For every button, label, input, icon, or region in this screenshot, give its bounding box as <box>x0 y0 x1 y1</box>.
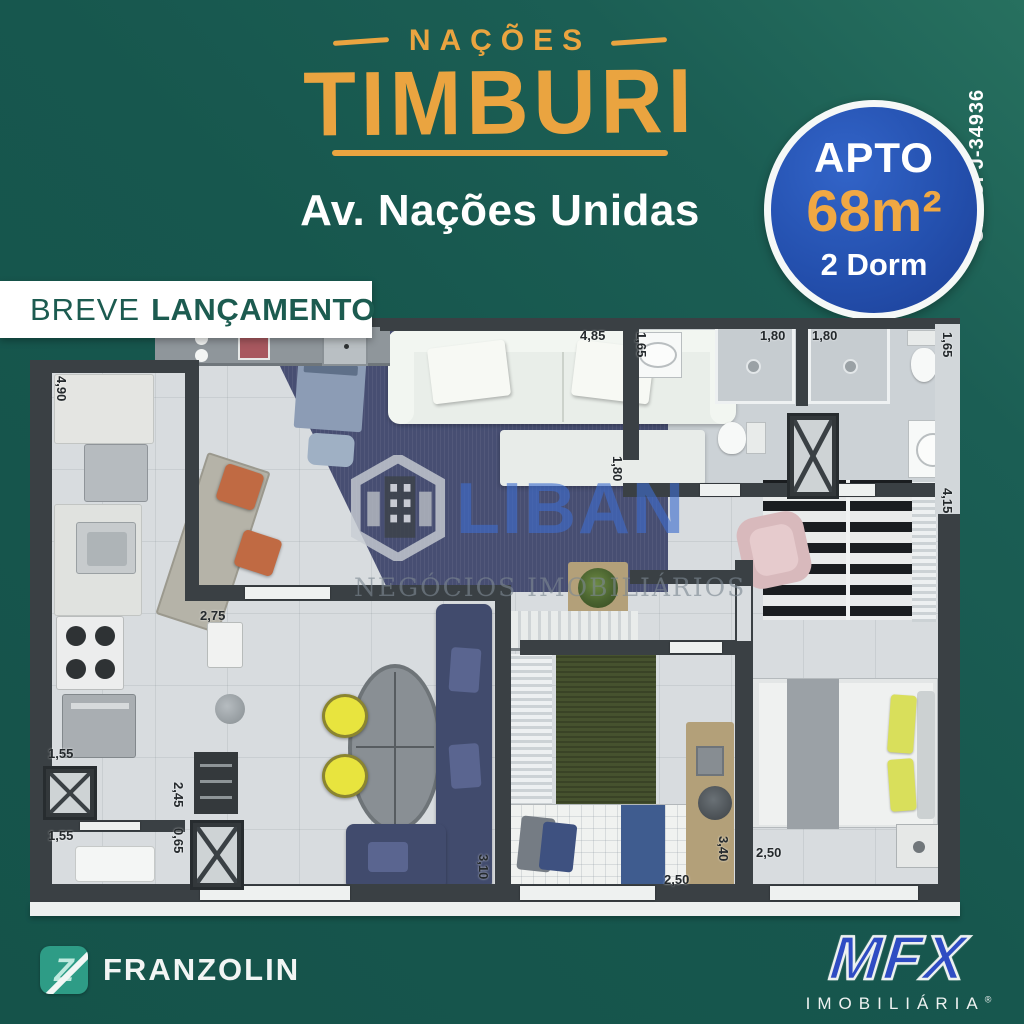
cooktop <box>207 622 243 668</box>
burner-1 <box>66 626 86 646</box>
dim-label-bed2-w: 2,50 <box>664 872 689 887</box>
mfx-subtitle: IMOBILIÁRIA® <box>791 994 1006 1014</box>
sofa-cushion-2 <box>449 743 482 789</box>
door-bath1 <box>700 484 740 496</box>
sofa-cushion-3 <box>368 842 408 872</box>
stove <box>56 616 124 690</box>
watermark-tagline: NEGÓCIOS IMOBILIÁRIOS <box>354 573 699 602</box>
nightstand <box>896 824 940 868</box>
launch-banner: BREVE LANÇAMENTO <box>0 281 372 338</box>
wall-bath-divider <box>796 326 808 406</box>
sofa-pillow-left <box>427 339 511 404</box>
banner-bold-text: LANÇAMENTO <box>151 292 376 328</box>
bed-pillow-yellow-1 <box>887 694 917 754</box>
watermark-name: LIBAN <box>456 473 686 545</box>
franzolin-logo-icon: Z <box>40 946 88 994</box>
bed-pillow-back <box>917 691 935 819</box>
dining-chair-2 <box>322 754 368 798</box>
dim-label-shaft-w: 1,55 <box>48 746 73 761</box>
dim-label-bath1-w: 1,80 <box>760 328 785 343</box>
badge-area-value: 68m² <box>806 179 941 246</box>
bath2-toilet-bowl <box>911 348 937 382</box>
franzolin-logo: Z FRANZOLIN <box>40 946 300 994</box>
living-sofa <box>388 330 736 424</box>
window-bed2 <box>520 886 655 900</box>
franzolin-name: FRANZOLIN <box>103 952 300 988</box>
burner-4 <box>95 659 115 679</box>
round-basin <box>215 694 245 724</box>
sectional-sofa-bottom <box>346 824 446 890</box>
wall-kitchen-bed2-divider <box>495 585 511 902</box>
dim-label-service2: 0,65 <box>171 828 186 853</box>
liban-watermark: LIBAN NEGÓCIOS IMOBILIÁRIOS <box>350 455 686 561</box>
bath1-toilet-tank <box>746 422 766 454</box>
balcony-strip <box>30 902 960 916</box>
shaft-x-icon-3 <box>190 820 244 890</box>
dim-label-bed2-len: 3,40 <box>716 836 731 861</box>
liban-building-icon <box>350 455 446 561</box>
bed-pillow-yellow-2 <box>887 758 917 812</box>
wall-left-outer <box>30 360 52 902</box>
fridge <box>84 444 148 502</box>
bath1-toilet-bowl <box>718 422 746 454</box>
shaft-x-icon <box>787 413 839 499</box>
blue-blanket <box>621 805 665 891</box>
door-bath2 <box>835 484 875 496</box>
franzolin-z-glyph: Z <box>40 946 88 994</box>
wall-top-left-cap <box>30 360 188 373</box>
dim-label-bath1-sink: 1,65 <box>634 332 649 357</box>
bed2-rug <box>556 648 656 808</box>
logo-dash-right-icon <box>611 37 667 46</box>
burner-3 <box>66 659 86 679</box>
master-bed <box>752 678 938 828</box>
dim-label-sofa-len: 3,10 <box>476 854 491 879</box>
mfx-registered-icon: ® <box>985 994 992 1004</box>
shower-head-2 <box>843 359 858 374</box>
nightstand-knob <box>913 841 925 853</box>
cooktop-dot <box>344 344 349 349</box>
dim-label-kitchen-w: 2,75 <box>200 608 225 623</box>
bed-throw <box>787 679 839 829</box>
dim-label-kitchen-len: 4,90 <box>54 376 69 401</box>
sofa-seam <box>562 352 564 422</box>
counter-line-3 <box>200 796 232 799</box>
shower-head-1 <box>746 359 761 374</box>
counter-line-1 <box>200 764 232 767</box>
armchair-cushion <box>747 522 800 578</box>
dining-chair-1 <box>322 694 368 738</box>
door-laundry <box>80 822 140 830</box>
master-rug-seam <box>846 480 850 620</box>
dim-label-bath2-w: 1,80 <box>812 328 837 343</box>
floor-plan: 4,90 4,85 1,65 1,80 1,80 1,65 1,80 4,15 … <box>30 318 960 902</box>
dim-label-laundry-w: 1,55 <box>48 828 73 843</box>
workstation-desk <box>294 358 367 433</box>
bed2-curtain <box>510 654 552 806</box>
dim-label-master-w: 2,50 <box>756 845 781 860</box>
shaft-x-icon-2 <box>43 766 97 820</box>
bed2-pillow-blue <box>539 821 578 872</box>
window-master <box>770 886 918 900</box>
sink-basin <box>87 532 127 566</box>
mfx-sub-text: IMOBILIÁRIA <box>806 994 985 1013</box>
workstation-chair <box>307 432 355 467</box>
bed2-monitor <box>696 746 724 776</box>
oven-handle <box>71 703 129 709</box>
wall-service-divider <box>185 360 199 588</box>
mfx-logo: MFX IMOBILIÁRIA® <box>791 928 1006 1014</box>
dim-label-bath2-sink: 1,65 <box>940 332 955 357</box>
dark-counter <box>194 752 238 814</box>
kitchen-sink <box>76 522 136 574</box>
table-seam-v <box>394 672 396 824</box>
counter-line-2 <box>200 780 232 783</box>
badge-dorm-label: 2 Dorm <box>821 246 928 283</box>
banner-light-text: BREVE <box>30 292 140 328</box>
dim-label-master-len: 4,15 <box>940 488 955 513</box>
sofa-arm-left <box>388 330 414 424</box>
mfx-name: MFX <box>788 928 1010 990</box>
kitchen-counter-left <box>54 374 154 444</box>
dim-label-living-len: 4,85 <box>580 328 605 343</box>
badge-apto-label: APTO <box>814 137 934 179</box>
burner-2 <box>95 626 115 646</box>
washing-machine <box>75 846 155 882</box>
master-curtain <box>912 480 936 622</box>
logo-dash-left-icon <box>333 37 389 46</box>
single-bed <box>508 804 690 890</box>
door-bed2 <box>670 642 722 653</box>
bed2-chair <box>698 786 732 820</box>
wall-bath-top <box>625 318 960 329</box>
area-badge: APTO 68m² 2 Dorm <box>764 100 984 320</box>
dim-label-service: 2,45 <box>171 782 186 807</box>
sofa-cushion-1 <box>449 647 482 693</box>
door-kitchen <box>245 587 330 599</box>
